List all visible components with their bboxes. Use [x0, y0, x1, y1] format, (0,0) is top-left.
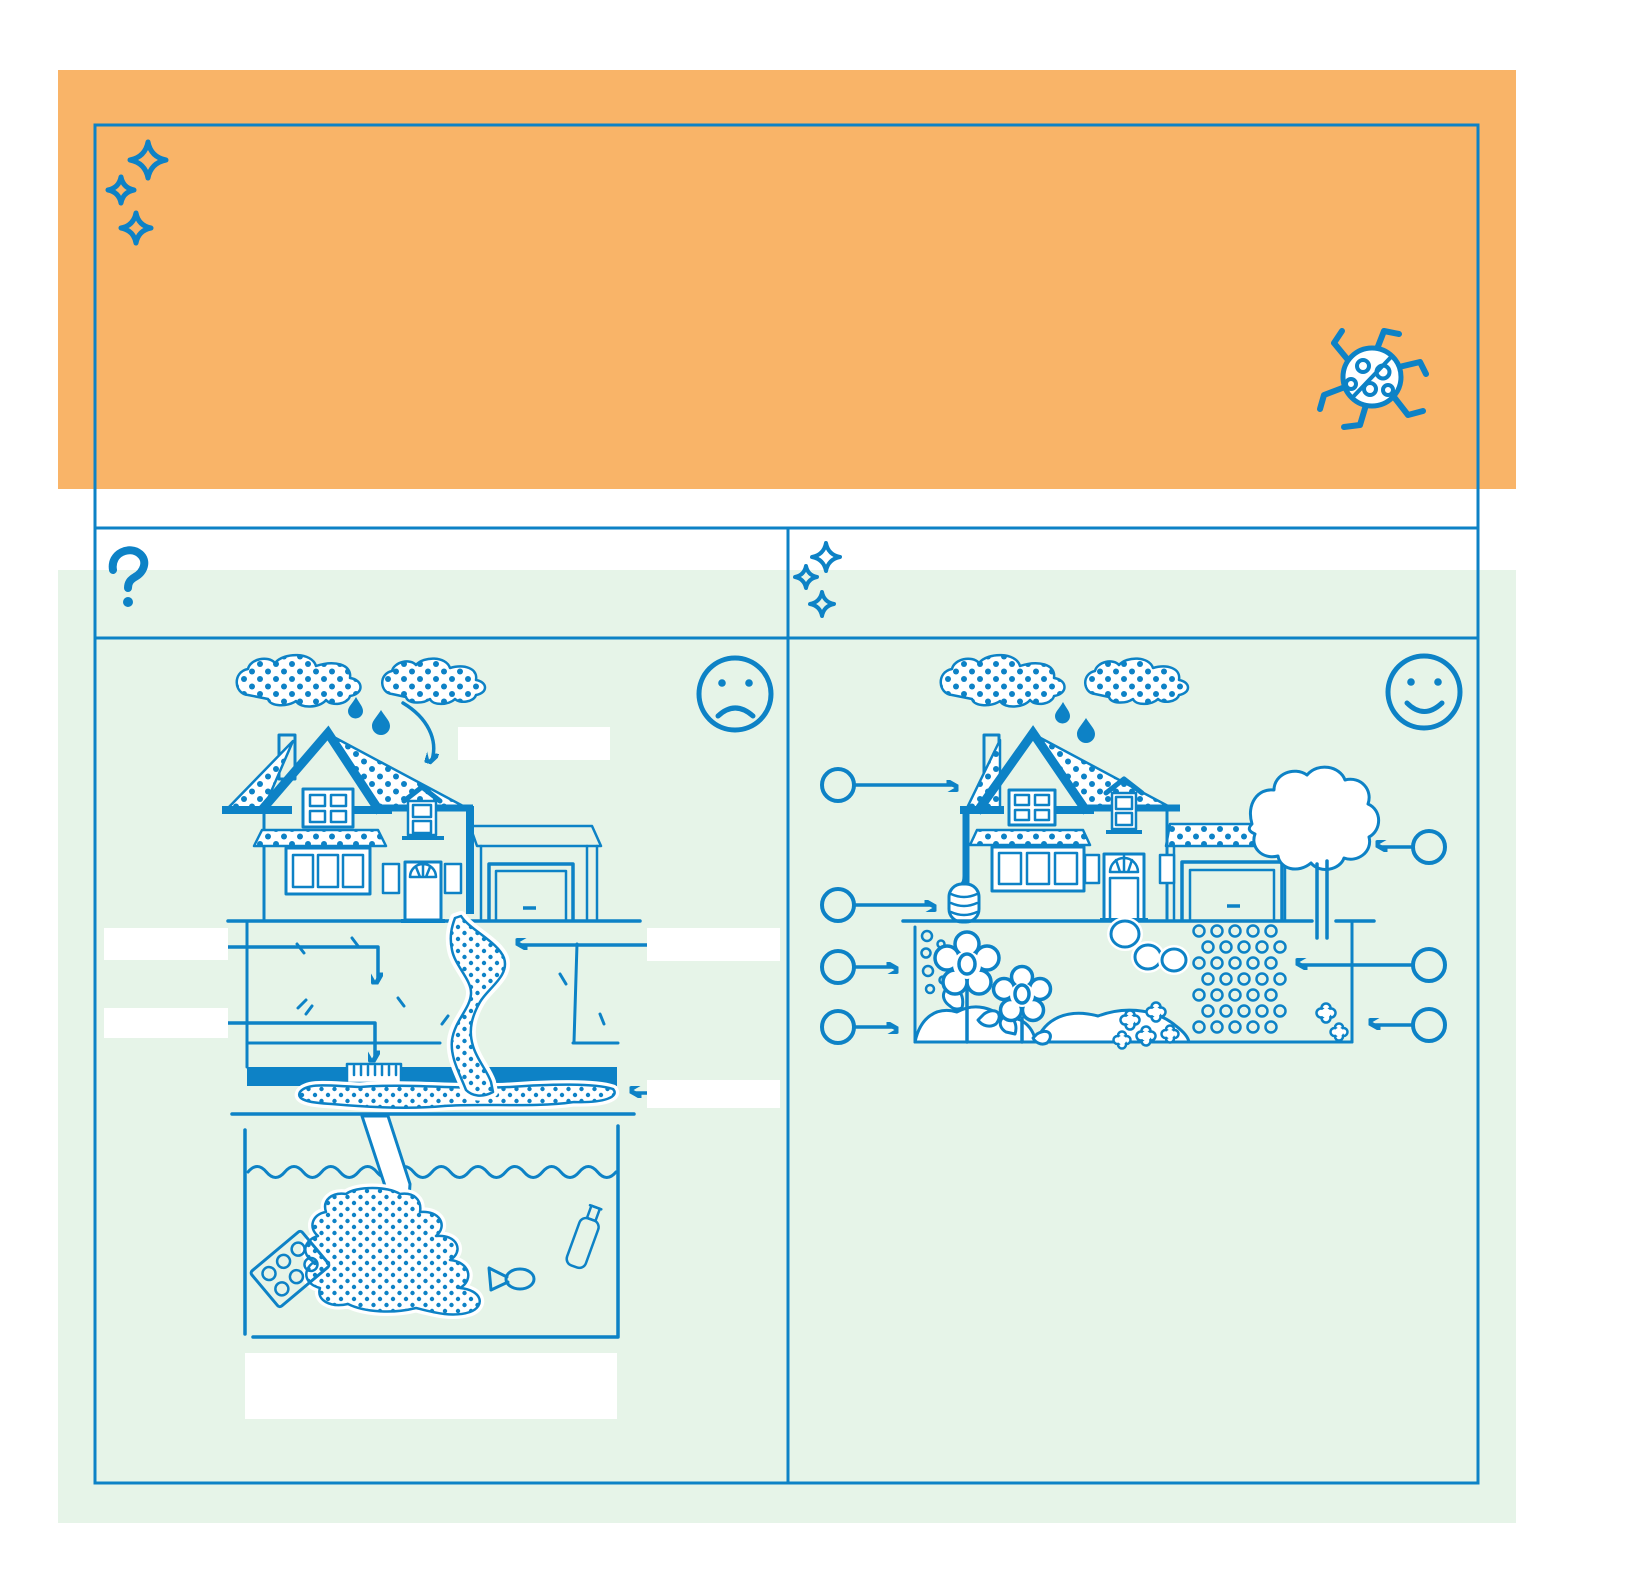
callout-circle: [822, 889, 854, 921]
callout-circle: [822, 1011, 854, 1043]
rain-cloud-icon: [237, 655, 485, 706]
callout-circle: [822, 951, 854, 983]
callout-circle: [1413, 831, 1445, 863]
house-illustration: [222, 733, 601, 921]
permeable-pavers: [1194, 926, 1286, 1033]
rain-drop-icon: [1055, 702, 1095, 743]
callout-circle: [1413, 949, 1445, 981]
infiltration-arrow: [227, 1023, 375, 1058]
arrow-to-roof: [403, 703, 434, 760]
sparkles-icon: [108, 142, 166, 243]
right-panel-scene: [822, 655, 1460, 1048]
rain-drop-icon: [348, 697, 390, 735]
question-mark-icon: [113, 550, 145, 607]
label-placeholder: [104, 1008, 228, 1038]
tree-icon: [1249, 767, 1378, 938]
downspout: [962, 806, 966, 886]
worksheet-page: [0, 0, 1626, 1592]
label-placeholder: [458, 727, 610, 760]
rain-garden-section: [915, 921, 1352, 1049]
soil-cross-section: [227, 923, 647, 1067]
rain-barrel-icon: [949, 884, 979, 922]
ladybug-icon: [1320, 331, 1426, 427]
label-placeholder: [104, 928, 228, 960]
label-placeholder: [647, 1080, 780, 1108]
stepping-stones: [1111, 921, 1186, 971]
house-illustration: [960, 733, 1180, 920]
storm-drain-grate: [347, 1064, 401, 1083]
fish-icon: [489, 1268, 534, 1290]
plastic-bottle-icon: [565, 1204, 605, 1270]
sad-face-icon: [699, 658, 771, 730]
label-placeholder: [647, 928, 780, 961]
pollution-plume: [305, 1188, 479, 1315]
callout-circle: [1413, 1009, 1445, 1041]
happy-face-icon: [1388, 656, 1460, 728]
label-placeholder: [245, 1353, 617, 1419]
callout-circle: [822, 769, 854, 801]
rain-cloud-icon: [941, 655, 1188, 706]
runoff-puddle: [299, 1085, 614, 1108]
water-surface-wave: [248, 1167, 616, 1178]
illustration-canvas: [0, 0, 1626, 1592]
sparkles-icon: [795, 543, 840, 616]
waterway: [245, 1116, 618, 1337]
